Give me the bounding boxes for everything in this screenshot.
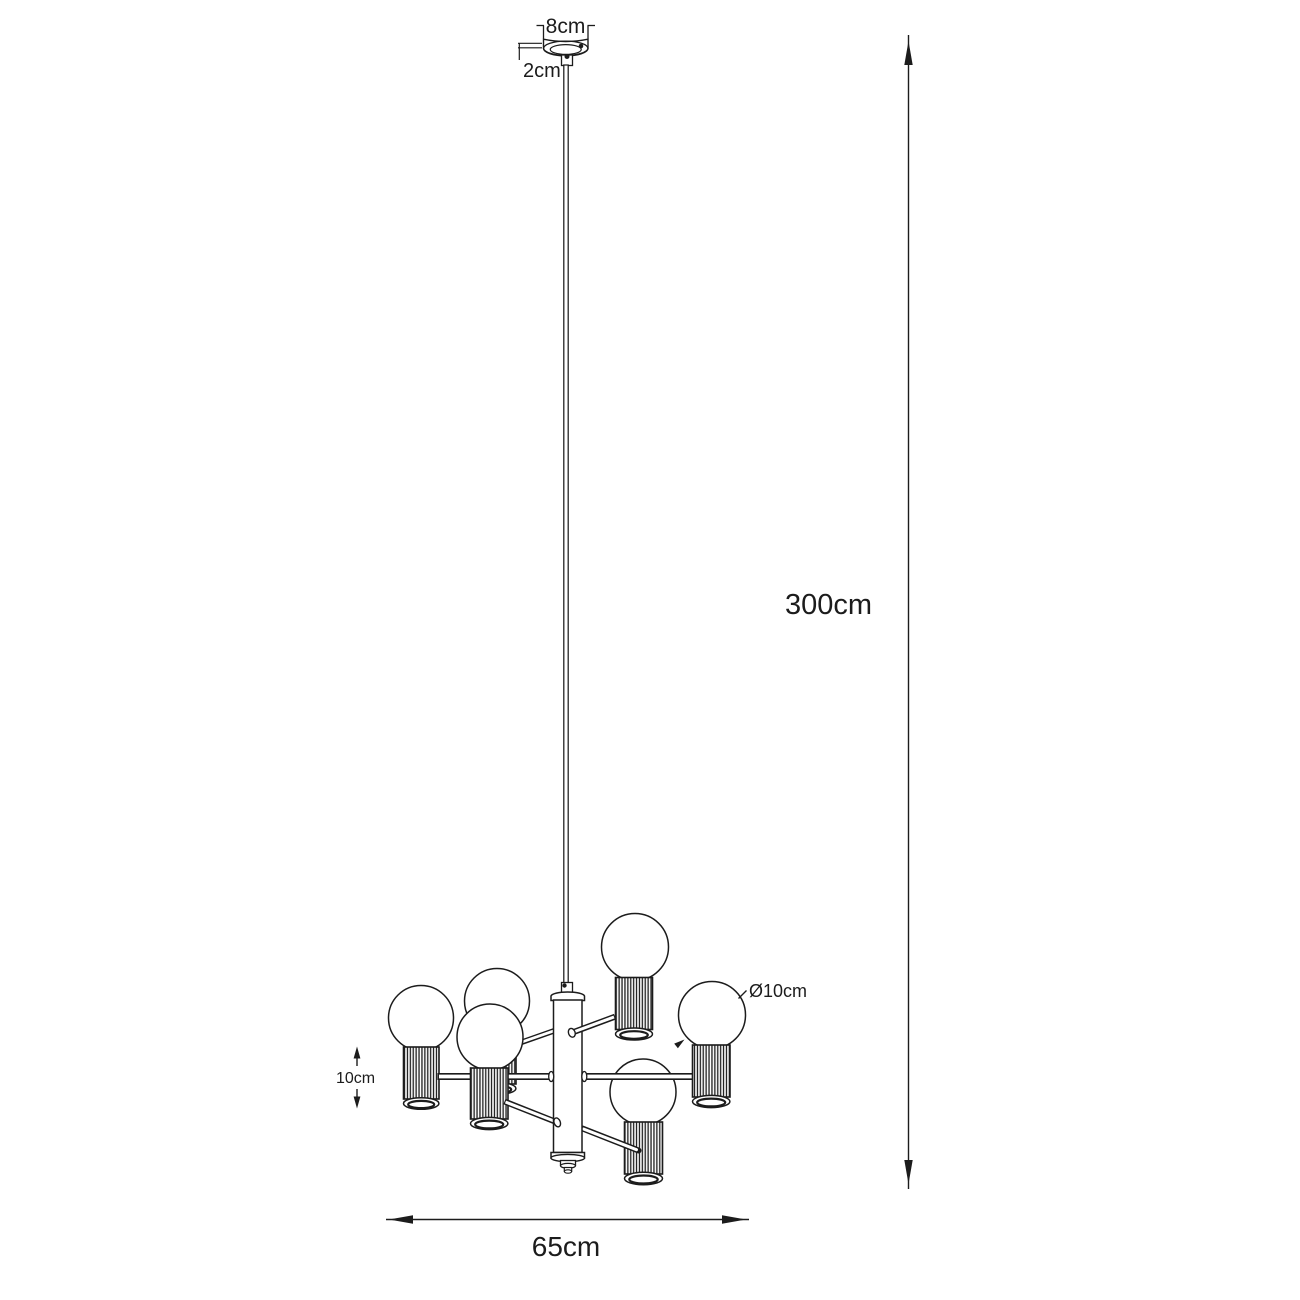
shade-ribbed — [471, 1068, 509, 1119]
label-suspension-height: 300cm — [785, 589, 872, 621]
arm-front-left — [505, 1102, 558, 1123]
dimension-canopy-width: 8cm — [537, 15, 596, 39]
arrow-up-icon — [904, 41, 912, 65]
column-body — [554, 1000, 583, 1153]
shade-ribbed — [404, 1047, 440, 1099]
canopy-screw — [579, 44, 584, 49]
arrow-left-icon — [389, 1215, 413, 1223]
bulb-glass — [679, 982, 746, 1049]
column-top-cap — [551, 992, 585, 1001]
label-bulb-diameter: Ø10cm — [749, 981, 807, 1001]
connector-screw — [562, 983, 566, 987]
arrow-down-icon — [904, 1160, 912, 1184]
bulb-far-left — [389, 986, 454, 1110]
cord-grip-screw — [565, 54, 570, 59]
arrow-up-icon — [354, 1047, 361, 1059]
dimension-drop-height: 300cm — [785, 35, 913, 1189]
joint-nub-left-arm — [549, 1072, 554, 1082]
dimension-fixture-width: 65cm — [386, 1215, 749, 1262]
bulb-glass — [389, 986, 454, 1051]
label-canopy-width: 8cm — [546, 15, 586, 38]
shade-opening — [475, 1121, 503, 1129]
suspension-rod — [564, 65, 568, 983]
label-shade-height: 10cm — [336, 1070, 375, 1087]
center-column — [551, 983, 585, 1174]
shade-ribbed — [693, 1045, 731, 1097]
arrow-right-icon — [722, 1215, 746, 1223]
label-fixture-width: 65cm — [532, 1231, 600, 1262]
joint-nub-right-arm — [582, 1072, 587, 1082]
chandelier-dimension-drawing: 8cm 2cm 300cm — [0, 0, 1300, 1300]
shade-opening — [620, 1031, 648, 1039]
arrow-diameter-icon — [674, 1040, 684, 1049]
bulb-glass — [602, 914, 669, 981]
bulb-right — [679, 982, 746, 1108]
shade-front-lower — [625, 1122, 663, 1185]
leader-line — [739, 991, 747, 999]
arrow-down-icon — [354, 1097, 361, 1109]
bulb-front-lower-glass — [610, 1059, 676, 1125]
dimension-shade-height: 10cm — [336, 1047, 375, 1109]
label-canopy-height: 2cm — [523, 60, 561, 82]
shade-opening — [697, 1099, 725, 1107]
bulb-glass — [457, 1004, 523, 1070]
shade-ribbed — [616, 978, 653, 1030]
shade-opening — [408, 1101, 434, 1108]
shade-opening — [629, 1176, 657, 1184]
diagram-canvas: 8cm 2cm 300cm — [0, 0, 1300, 1300]
finial-nub-rim — [564, 1170, 571, 1173]
